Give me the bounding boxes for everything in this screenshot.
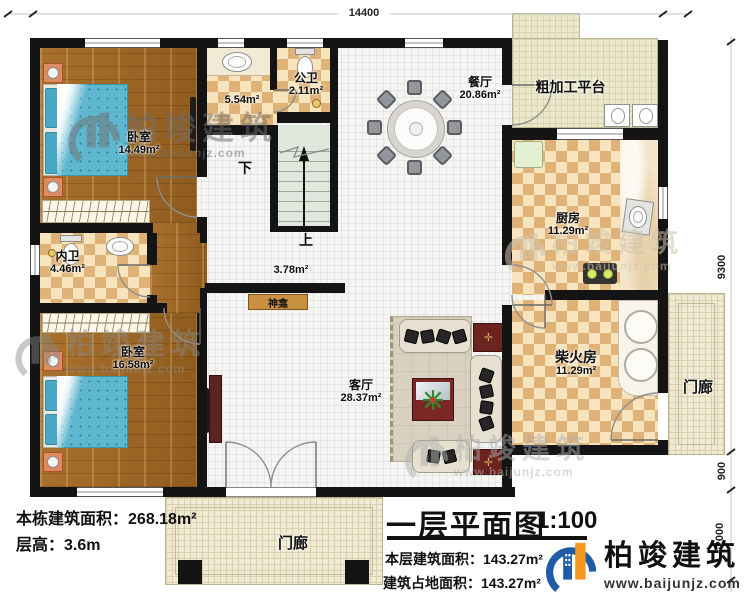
- dining-chair: [367, 120, 382, 135]
- wall: [197, 313, 207, 487]
- sink-private-bath: [106, 237, 134, 256]
- window: [218, 38, 244, 48]
- window: [30, 245, 40, 275]
- wall: [658, 440, 668, 455]
- wall: [147, 233, 157, 265]
- coffee-table: [412, 378, 454, 421]
- stove: [583, 263, 617, 284]
- dining-table-center: [409, 122, 423, 136]
- sofa-pillow: [479, 400, 494, 415]
- label-porch-right: 门廊: [674, 380, 722, 397]
- floor-plan-canvas: ✛ ✛ 神龛: [0, 0, 750, 604]
- label-bedroom2: 卧室 16.58m²: [102, 346, 164, 371]
- sink-vanity: [222, 52, 252, 72]
- wall: [658, 40, 668, 187]
- wall: [502, 305, 512, 497]
- sofa-single: [412, 440, 470, 473]
- window: [287, 38, 323, 48]
- wall: [658, 219, 668, 393]
- fridge: [514, 141, 543, 168]
- kitchen-sink-bowl: [629, 206, 647, 228]
- dim-right-9300: 9300: [715, 247, 729, 287]
- dim-top: 14400: [338, 7, 390, 20]
- wall: [147, 295, 157, 303]
- stairs-down-label: 下: [238, 161, 252, 175]
- nightstand: [43, 63, 63, 83]
- wall: [330, 38, 338, 232]
- nightstand: [43, 351, 63, 371]
- dining-chair: [447, 120, 462, 135]
- brand-logo: 柏竣建筑 www.baijunjz.com: [540, 538, 741, 594]
- label-porch-bottom: 门廊: [262, 536, 324, 553]
- room-porch-right: [668, 293, 725, 455]
- label-firewood: 柴火房 11.29m²: [545, 350, 607, 377]
- wall: [277, 112, 330, 123]
- shrine-label: 神龛: [268, 295, 288, 310]
- sofa-three-seat: [399, 319, 471, 353]
- footprint-line: 建筑占地面积：143.27m²: [383, 573, 541, 593]
- label-bedroom1: 卧室 14.49m²: [104, 131, 174, 156]
- sofa-pillow: [419, 328, 434, 343]
- wall: [205, 125, 278, 135]
- wall: [197, 48, 207, 177]
- pass-through-window: [557, 128, 623, 140]
- wall: [30, 223, 153, 233]
- sofa-pillow: [425, 449, 440, 464]
- utility-sink: [632, 104, 658, 127]
- window: [405, 38, 443, 48]
- porch-column: [178, 560, 202, 584]
- toilet-tank: [60, 235, 82, 242]
- label-dining: 餐厅 20.86m²: [450, 76, 510, 101]
- wall: [270, 125, 278, 232]
- plant-icon: [422, 389, 444, 411]
- side-table: ✛: [473, 323, 504, 352]
- brand-website: www.baijunjz.com: [604, 575, 741, 591]
- brand-logo-icon: [540, 538, 596, 594]
- sofa-pillow: [478, 367, 495, 384]
- window: [658, 187, 668, 219]
- porch-column: [345, 560, 369, 584]
- bed-blanket-fold: [57, 84, 97, 176]
- sofa-pillow: [403, 328, 419, 344]
- brand-name: 柏竣建筑: [604, 542, 741, 571]
- label-rough-platform: 粗加工平台: [513, 80, 628, 95]
- window: [85, 38, 160, 48]
- wall: [270, 38, 277, 90]
- bedroom-corridor-floor: [150, 223, 207, 313]
- dim-right-900: 900: [715, 453, 729, 489]
- wall: [545, 290, 658, 300]
- wall: [623, 128, 658, 140]
- firewood-pot: [624, 348, 658, 382]
- wall: [502, 125, 512, 265]
- stairs-up-label: 上: [299, 233, 313, 247]
- sofa-pillow: [478, 415, 495, 432]
- label-kitchen: 厨房 11.29m²: [537, 212, 599, 237]
- wall: [30, 303, 167, 313]
- nightstand: [43, 452, 63, 472]
- wall: [512, 128, 557, 140]
- building-total-area: 本栋建筑面积：268.18m²: [16, 505, 197, 529]
- wall: [200, 223, 207, 243]
- label-living: 客厅 28.37m²: [330, 379, 392, 404]
- wall: [205, 283, 345, 293]
- side-table: ✛: [473, 449, 504, 475]
- dining-chair: [407, 160, 422, 175]
- sofa-pillow: [478, 383, 493, 398]
- wall: [316, 487, 515, 497]
- label-private-bath: 内卫 4.46m²: [40, 250, 95, 275]
- tv-bedroom1: [190, 97, 196, 151]
- room-rough-platform-floor-notch: [512, 13, 580, 40]
- entrance-threshold: [226, 487, 316, 497]
- floor-area-line: 本层建筑面积：143.27m²: [385, 549, 543, 569]
- sofa-pillow: [451, 328, 467, 344]
- label-vanity: 5.54m²: [213, 94, 271, 106]
- wall: [512, 445, 668, 455]
- wardrobe-bedroom1: [42, 200, 150, 223]
- nightstand: [43, 177, 63, 197]
- drawing-scale: 1:100: [536, 507, 597, 535]
- sofa-two-seat: [470, 355, 502, 443]
- sofa-pillow: [435, 328, 451, 344]
- washing-machine: [604, 104, 630, 127]
- sofa-pillow: [441, 449, 457, 465]
- firewood-pot: [624, 310, 658, 344]
- staircase-treads: [278, 150, 330, 232]
- window: [77, 487, 163, 497]
- bed-blanket-fold: [57, 376, 95, 448]
- exterior-patch: [512, 455, 658, 487]
- toilet-tank: [295, 48, 315, 55]
- label-public-bath: 公卫 2.11m²: [281, 72, 331, 97]
- wardrobe-bedroom2: [42, 313, 150, 333]
- floor-drain: [312, 99, 321, 108]
- label-hall-area: 3.78m²: [262, 264, 320, 276]
- dining-chair: [407, 80, 422, 95]
- floor-height: 层高：3.6m: [16, 531, 100, 555]
- tv-cabinet: [209, 375, 222, 443]
- shrine-table: 神龛: [248, 294, 308, 310]
